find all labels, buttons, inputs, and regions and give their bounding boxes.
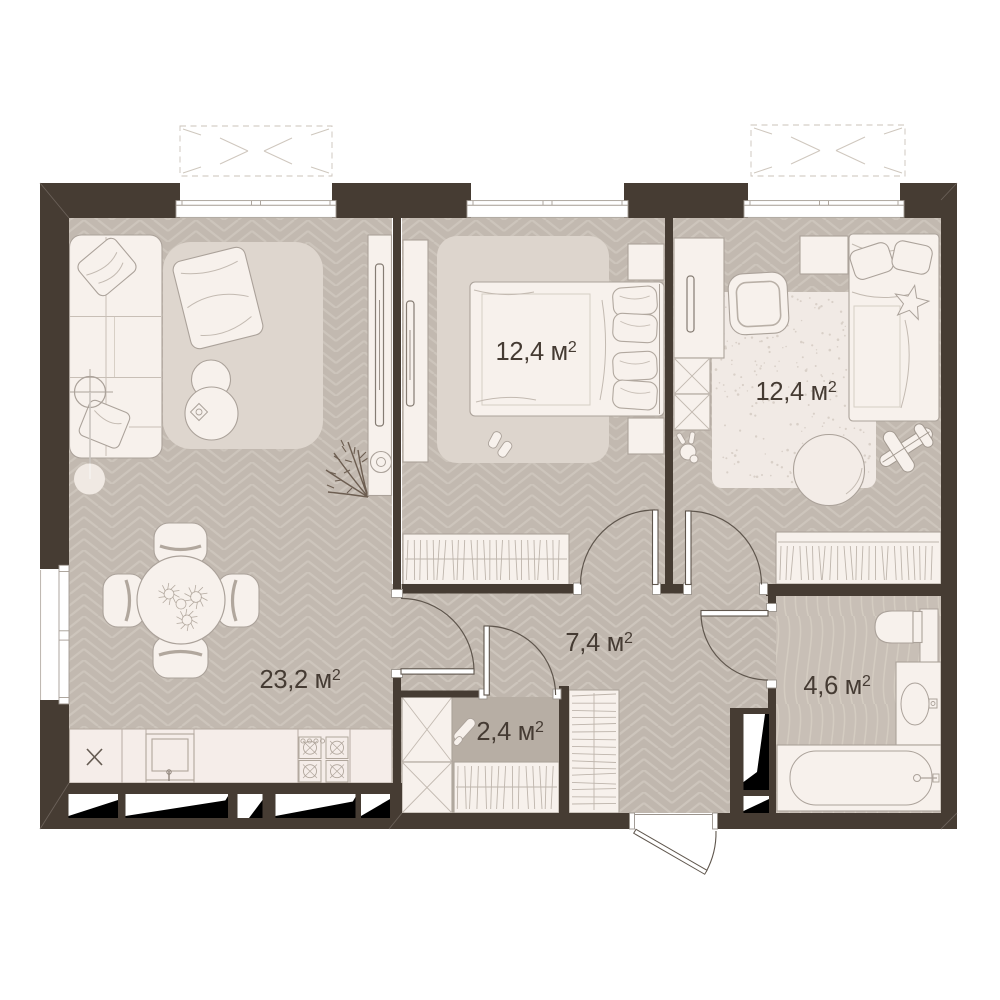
svg-text:23,2 м2: 23,2 м2 (259, 666, 340, 694)
svg-text:2,4 м2: 2,4 м2 (476, 718, 544, 746)
svg-text:4,6 м2: 4,6 м2 (803, 672, 871, 700)
svg-text:12,4 м2: 12,4 м2 (495, 338, 576, 366)
svg-text:12,4 м2: 12,4 м2 (755, 378, 836, 406)
svg-text:7,4 м2: 7,4 м2 (565, 629, 633, 657)
